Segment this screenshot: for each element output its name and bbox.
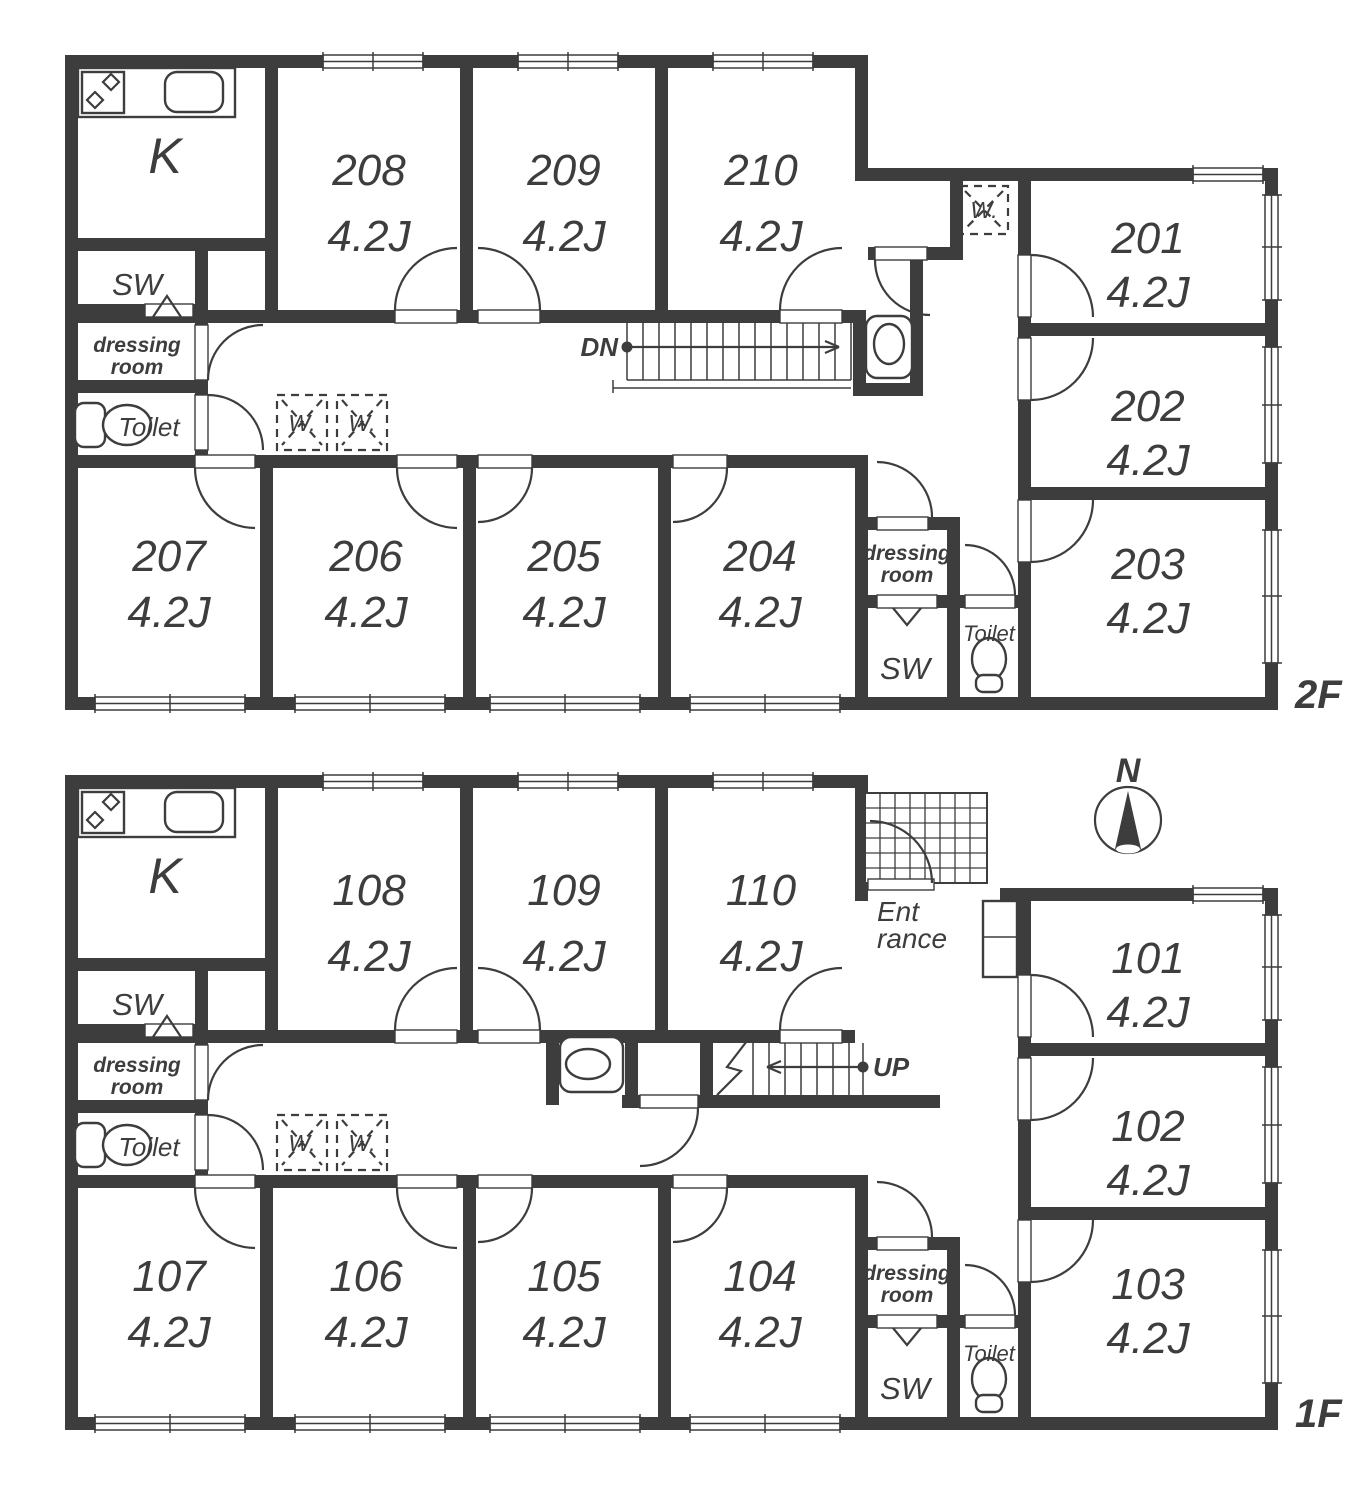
- room-number: 104: [723, 1252, 796, 1301]
- room-size: 4.2J: [718, 588, 802, 637]
- dressing-room-label: dressing: [93, 334, 181, 357]
- stairs-down-label: DN: [580, 332, 619, 362]
- stove-icon: [82, 792, 124, 833]
- storage-label: SW: [880, 1371, 933, 1406]
- toilet-label: Toilet: [118, 412, 181, 442]
- bathtub-icon: [866, 316, 912, 378]
- room-number: 109: [527, 866, 600, 915]
- room-number: 204: [722, 532, 796, 581]
- room-number: 107: [132, 1252, 207, 1301]
- room-size: 4.2J: [1106, 1314, 1190, 1363]
- dressing-room-label: dressing: [863, 1262, 951, 1285]
- room-number: 208: [331, 146, 406, 195]
- room-number: 105: [527, 1252, 601, 1301]
- floor-plan-drawing: K 208 4.2J 209 4.2J 210 4.2J 201 4.2J 20…: [0, 0, 1361, 1500]
- room-size: 4.2J: [522, 1308, 606, 1357]
- washer-label: W.: [288, 1130, 315, 1156]
- floor-plan-page: K 208 4.2J 209 4.2J 210 4.2J 201 4.2J 20…: [0, 0, 1361, 1500]
- washer-label: W.: [970, 197, 997, 223]
- room-size: 4.2J: [719, 212, 803, 261]
- floor-tag-1f: 1F: [1295, 1392, 1343, 1436]
- dressing-room-label: room: [111, 1076, 164, 1099]
- room-size: 4.2J: [719, 932, 803, 981]
- room-number: 207: [131, 532, 207, 581]
- folding-door-icon: [893, 1328, 921, 1345]
- walls-2f: [65, 55, 1278, 710]
- storage-label: SW: [880, 651, 933, 686]
- room-size: 4.2J: [324, 588, 408, 637]
- room-size: 4.2J: [1106, 988, 1190, 1037]
- floor-tag-2f: 2F: [1294, 673, 1343, 717]
- dressing-room-label: room: [881, 564, 934, 587]
- entrance-label: rance: [877, 923, 947, 954]
- stair-start-dot: [858, 1062, 869, 1073]
- room-size: 4.2J: [324, 1308, 408, 1357]
- room-number: 203: [1110, 540, 1185, 589]
- stove-icon: [82, 72, 124, 113]
- kitchen-label: K: [148, 848, 184, 904]
- stairs-down-2f: [613, 323, 851, 393]
- room-number: 106: [329, 1252, 403, 1301]
- room-number: 205: [526, 532, 601, 581]
- dressing-room-label: dressing: [93, 1054, 181, 1077]
- room-number: 101: [1111, 934, 1184, 983]
- stairs-up-label: UP: [873, 1052, 910, 1082]
- sink-icon: [165, 72, 223, 112]
- stairs-up-1f: [717, 1037, 869, 1095]
- room-size: 4.2J: [1106, 268, 1190, 317]
- room-size: 4.2J: [522, 588, 606, 637]
- room-number: 206: [328, 532, 403, 581]
- room-size: 4.2J: [522, 932, 606, 981]
- kitchen-counter: [78, 788, 235, 837]
- room-size: 4.2J: [327, 932, 411, 981]
- room-number: 108: [332, 866, 406, 915]
- dressing-room-label: room: [881, 1284, 934, 1307]
- stair-start-dot: [622, 342, 633, 353]
- kitchen-label: K: [148, 128, 184, 184]
- room-number: 110: [726, 866, 797, 915]
- storage-label: SW: [112, 267, 165, 302]
- bathtub-icon: [560, 1037, 623, 1092]
- room-number: 210: [723, 146, 798, 195]
- storage-label: SW: [112, 987, 165, 1022]
- toilet-label: Toilet: [963, 1341, 1016, 1366]
- kitchen-counter: [78, 68, 235, 117]
- washer-label: W.: [348, 410, 375, 436]
- room-size: 4.2J: [1106, 594, 1190, 643]
- room-size: 4.2J: [718, 1308, 802, 1357]
- toilet-label: Toilet: [118, 1132, 181, 1162]
- folding-door-icon: [893, 608, 921, 625]
- north-label: N: [1116, 752, 1142, 790]
- room-size: 4.2J: [127, 1308, 211, 1357]
- washer-label: W.: [288, 410, 315, 436]
- washer-label: W.: [348, 1130, 375, 1156]
- room-size: 4.2J: [1106, 1156, 1190, 1205]
- toilet-label: Toilet: [963, 621, 1016, 646]
- floor-plan-2f: K 208 4.2J 209 4.2J 210 4.2J 201 4.2J 20…: [65, 52, 1282, 713]
- dressing-room-label: dressing: [863, 542, 951, 565]
- room-size: 4.2J: [127, 588, 211, 637]
- room-number: 102: [1111, 1102, 1184, 1151]
- floor-plan-1f: K 108 4.2J 109 4.2J 110 4.2J 101 4.2J 10…: [65, 772, 1282, 1433]
- room-number: 201: [1110, 214, 1184, 263]
- entrance-step: [983, 901, 1017, 977]
- room-number: 202: [1110, 382, 1184, 431]
- room-size: 4.2J: [1106, 436, 1190, 485]
- room-number: 209: [526, 146, 600, 195]
- dressing-room-label: room: [111, 356, 164, 379]
- stair-break-icon: [717, 1037, 750, 1095]
- sink-icon: [165, 792, 223, 832]
- toilet-icon: [972, 1358, 1006, 1412]
- room-number: 103: [1111, 1260, 1185, 1309]
- toilet-icon: [972, 638, 1006, 692]
- compass-icon: N: [1095, 752, 1161, 854]
- room-size: 4.2J: [522, 212, 606, 261]
- room-size: 4.2J: [327, 212, 411, 261]
